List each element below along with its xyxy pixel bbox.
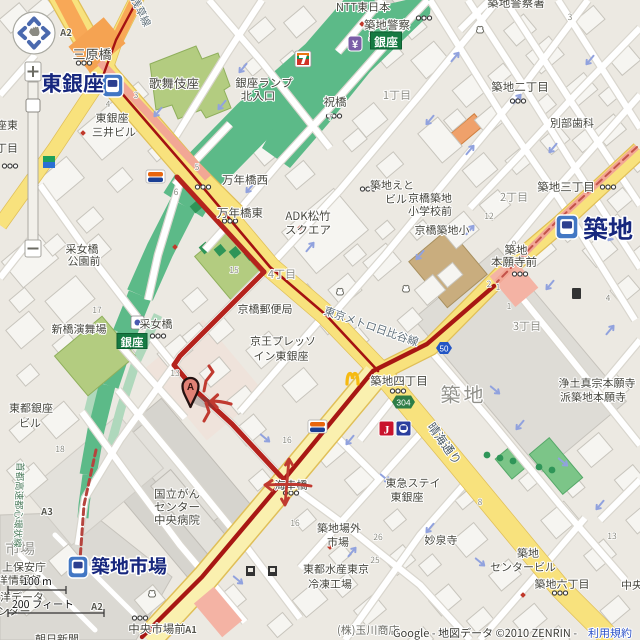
svg-text:50: 50 [440,345,449,354]
svg-text:¥: ¥ [352,39,359,51]
svg-text:304: 304 [396,398,410,408]
svg-text:J: J [384,423,390,437]
svg-text:A: A [187,382,194,393]
